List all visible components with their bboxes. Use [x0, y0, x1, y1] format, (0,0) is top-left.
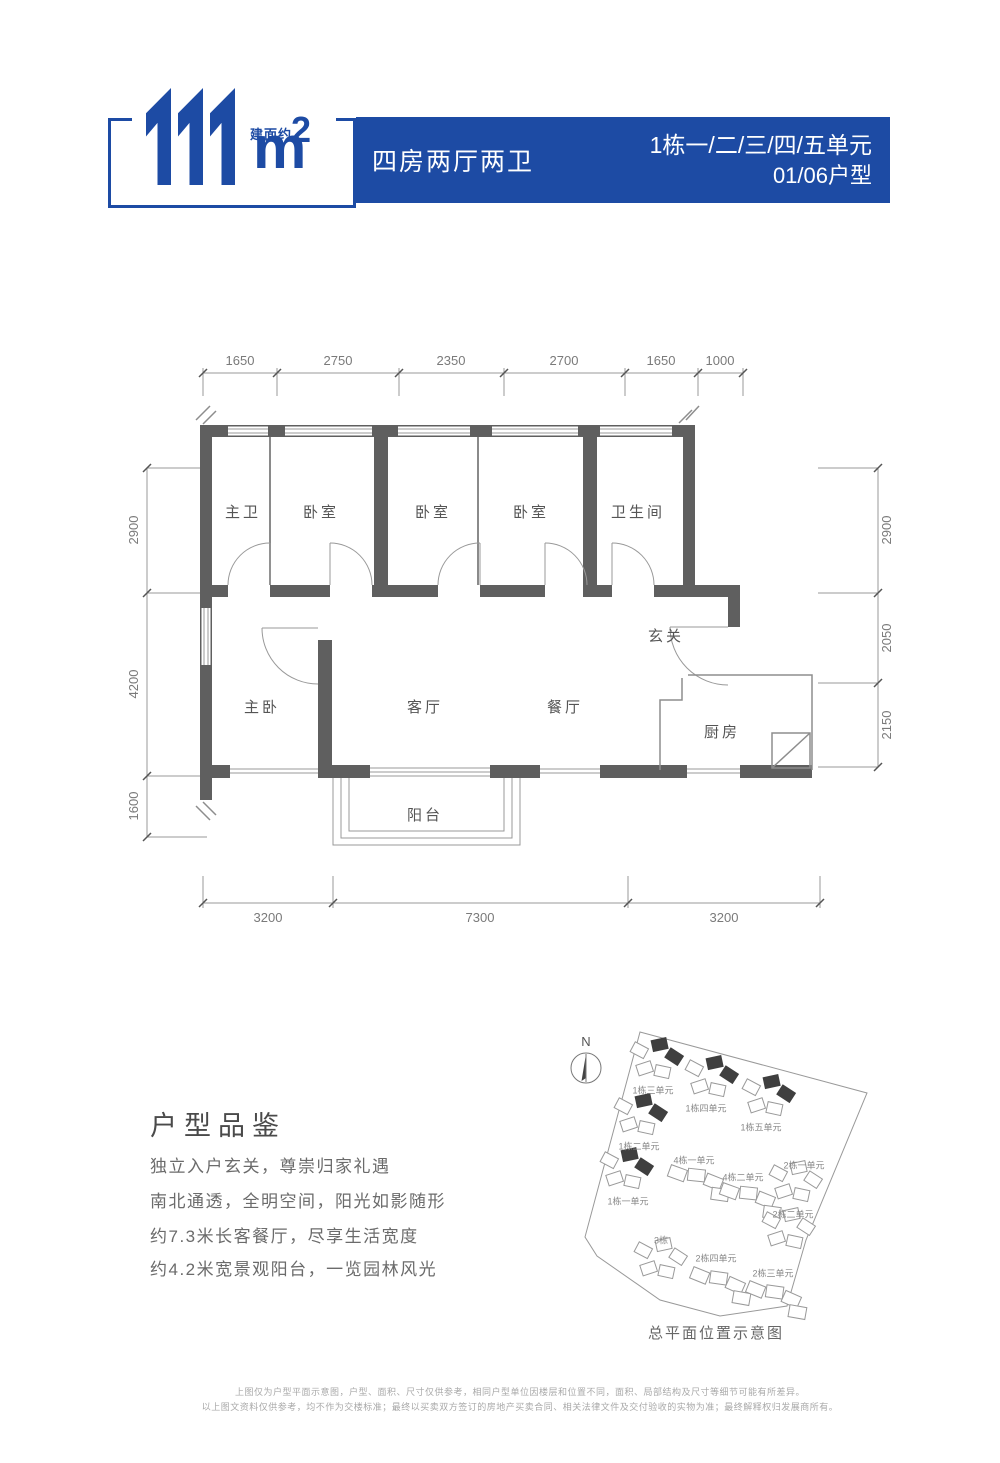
room-label-balcony: 阳台: [407, 807, 443, 824]
header-blue-banner: 四房两厅两卫 1栋一/二/三/四/五单元 01/06户型: [356, 117, 890, 203]
dim-right-3: 2150: [879, 711, 894, 740]
site-label: 1栋一单元: [607, 1195, 648, 1208]
site-label: 1栋二单元: [618, 1140, 659, 1153]
room-label-bedroom: 卧室: [415, 504, 451, 521]
window-top-1: [228, 427, 268, 436]
site-label: 1栋五单元: [740, 1121, 781, 1134]
unit-line1: 1栋一/二/三/四/五单元: [650, 130, 872, 161]
unit-info: 1栋一/二/三/四/五单元 01/06户型: [650, 130, 872, 191]
room-label-master-bath: 主卫: [225, 504, 261, 521]
dimensions-bottom: 3200 7300 3200: [199, 876, 824, 925]
dim-top-6: 1000: [706, 353, 735, 368]
room-label-bedroom: 卧室: [513, 504, 549, 521]
site-label: 1栋三单元: [632, 1084, 673, 1097]
kitchen-layer: [660, 675, 812, 770]
intro-line: 南北通透，全明空间，阳光如影随形: [150, 1187, 446, 1212]
dimensions-left: 2900 4200 1600: [126, 464, 207, 841]
floorplan-page: 建面约 m 2 四房两厅两卫 1栋一/二/三/四/五单元 01/06户型 165…: [0, 0, 1000, 1463]
dim-bottom-3: 3200: [710, 910, 739, 925]
window-top-3: [398, 427, 470, 436]
site-plan: [555, 1020, 885, 1345]
intro-line: 约7.3米长客餐厅，尽享生活宽度: [150, 1222, 419, 1247]
dim-top-3: 2350: [437, 353, 466, 368]
dimensions-top: 1650 2750 2350 2700 1650 1000: [199, 353, 747, 396]
north-label: N: [581, 1034, 590, 1049]
layout-label: 四房两厅两卫: [372, 142, 534, 178]
room-label-bathroom: 卫生间: [611, 504, 665, 521]
dim-top-1: 1650: [226, 353, 255, 368]
room-label-dining: 餐厅: [547, 699, 583, 716]
footer-line2: 以上图文资料仅供参考，均不作为交楼标准；最终以买卖双方签订的房地产买卖合同、相关…: [100, 1400, 940, 1415]
dim-left-2: 4200: [126, 670, 141, 699]
intro-line: 约4.2米宽景观阳台，一览园林风光: [150, 1255, 437, 1280]
window-top-4: [492, 427, 578, 436]
floor-plan: 1650 2750 2350 2700 1650 1000 2900 4200 …: [110, 330, 900, 950]
window-bottom-1: [230, 766, 318, 777]
dim-top-2: 2750: [324, 353, 353, 368]
room-label-kitchen: 厨房: [704, 724, 740, 741]
north-arrow-icon: [571, 1053, 601, 1083]
site-label: 2栋一单元: [783, 1159, 824, 1172]
room-label-bedroom: 卧室: [303, 504, 339, 521]
window-bottom-3: [687, 766, 740, 777]
site-label: 2栋三单元: [752, 1267, 793, 1280]
room-label-foyer: 玄关: [648, 628, 684, 645]
room-label-living: 客厅: [407, 699, 443, 716]
site-label: 4栋二单元: [722, 1171, 763, 1184]
footer-line1: 上图仅为户型平面示意图，户型、面积、尺寸仅供参考，相同户型单位因楼层和位置不同，…: [100, 1385, 940, 1400]
dim-right-1: 2900: [879, 516, 894, 545]
dim-left-3: 1600: [126, 792, 141, 821]
site-label: 1栋四单元: [685, 1102, 726, 1115]
window-bottom-2: [540, 766, 600, 777]
site-label: 2栋四单元: [695, 1252, 736, 1265]
window-top-2: [285, 427, 372, 436]
intro-title: 户型品鉴: [150, 1104, 286, 1143]
dim-bottom-2: 7300: [466, 910, 495, 925]
walls-layer: [196, 406, 812, 820]
room-label-master-bedroom: 主卧: [244, 699, 280, 716]
area-superscript: 2: [291, 112, 311, 148]
site-label: 3栋: [654, 1234, 668, 1247]
window-top-5: [600, 427, 672, 436]
unit-line2: 01/06户型: [650, 161, 872, 191]
dimensions-right: 2900 2050 2150: [818, 464, 894, 771]
dim-left-1: 2900: [126, 516, 141, 545]
site-label: 2栋二单元: [772, 1208, 813, 1221]
footer-disclaimer: 上图仅为户型平面示意图，户型、面积、尺寸仅供参考，相同户型单位因楼层和位置不同，…: [100, 1385, 940, 1415]
intro-line: 独立入户玄关，尊崇归家礼遇: [150, 1152, 391, 1177]
window-left: [202, 608, 211, 665]
dim-top-4: 2700: [550, 353, 579, 368]
windows-layer: [202, 427, 741, 778]
site-plan-caption: 总平面位置示意图: [648, 1322, 784, 1343]
site-label: 4栋一单元: [673, 1154, 714, 1167]
dim-top-5: 1650: [647, 353, 676, 368]
dim-right-2: 2050: [879, 624, 894, 653]
balcony-slider: [370, 766, 490, 777]
dim-bottom-1: 3200: [254, 910, 283, 925]
